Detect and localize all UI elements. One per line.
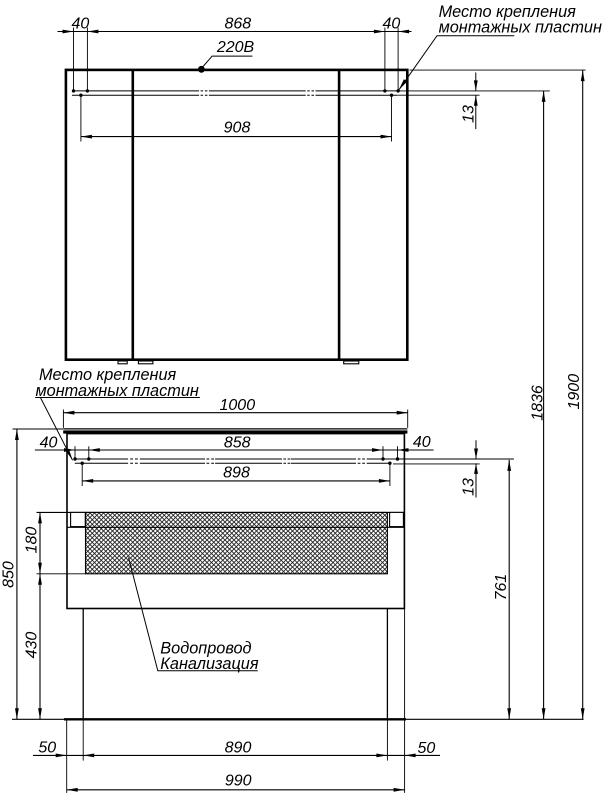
svg-text:850: 850 <box>1 561 18 588</box>
svg-text:180: 180 <box>24 527 41 554</box>
svg-text:908: 908 <box>224 119 251 136</box>
svg-text:761: 761 <box>493 574 510 601</box>
svg-text:220В: 220В <box>216 39 255 56</box>
svg-text:40: 40 <box>383 15 401 32</box>
svg-text:монтажных пластин: монтажных пластин <box>439 19 602 37</box>
svg-text:40: 40 <box>40 434 58 451</box>
svg-text:50: 50 <box>418 740 436 757</box>
svg-text:13: 13 <box>461 105 478 123</box>
svg-text:858: 858 <box>224 434 251 451</box>
svg-text:1000: 1000 <box>220 397 256 414</box>
svg-text:40: 40 <box>413 434 431 451</box>
svg-text:990: 990 <box>225 773 252 790</box>
svg-text:13: 13 <box>461 478 478 496</box>
svg-text:40: 40 <box>72 15 90 32</box>
svg-text:1900: 1900 <box>566 374 583 410</box>
svg-text:898: 898 <box>223 465 250 482</box>
svg-text:50: 50 <box>38 740 56 757</box>
svg-text:890: 890 <box>225 739 252 756</box>
svg-text:868: 868 <box>224 15 251 32</box>
svg-text:1836: 1836 <box>530 385 547 421</box>
svg-text:430: 430 <box>24 632 41 659</box>
